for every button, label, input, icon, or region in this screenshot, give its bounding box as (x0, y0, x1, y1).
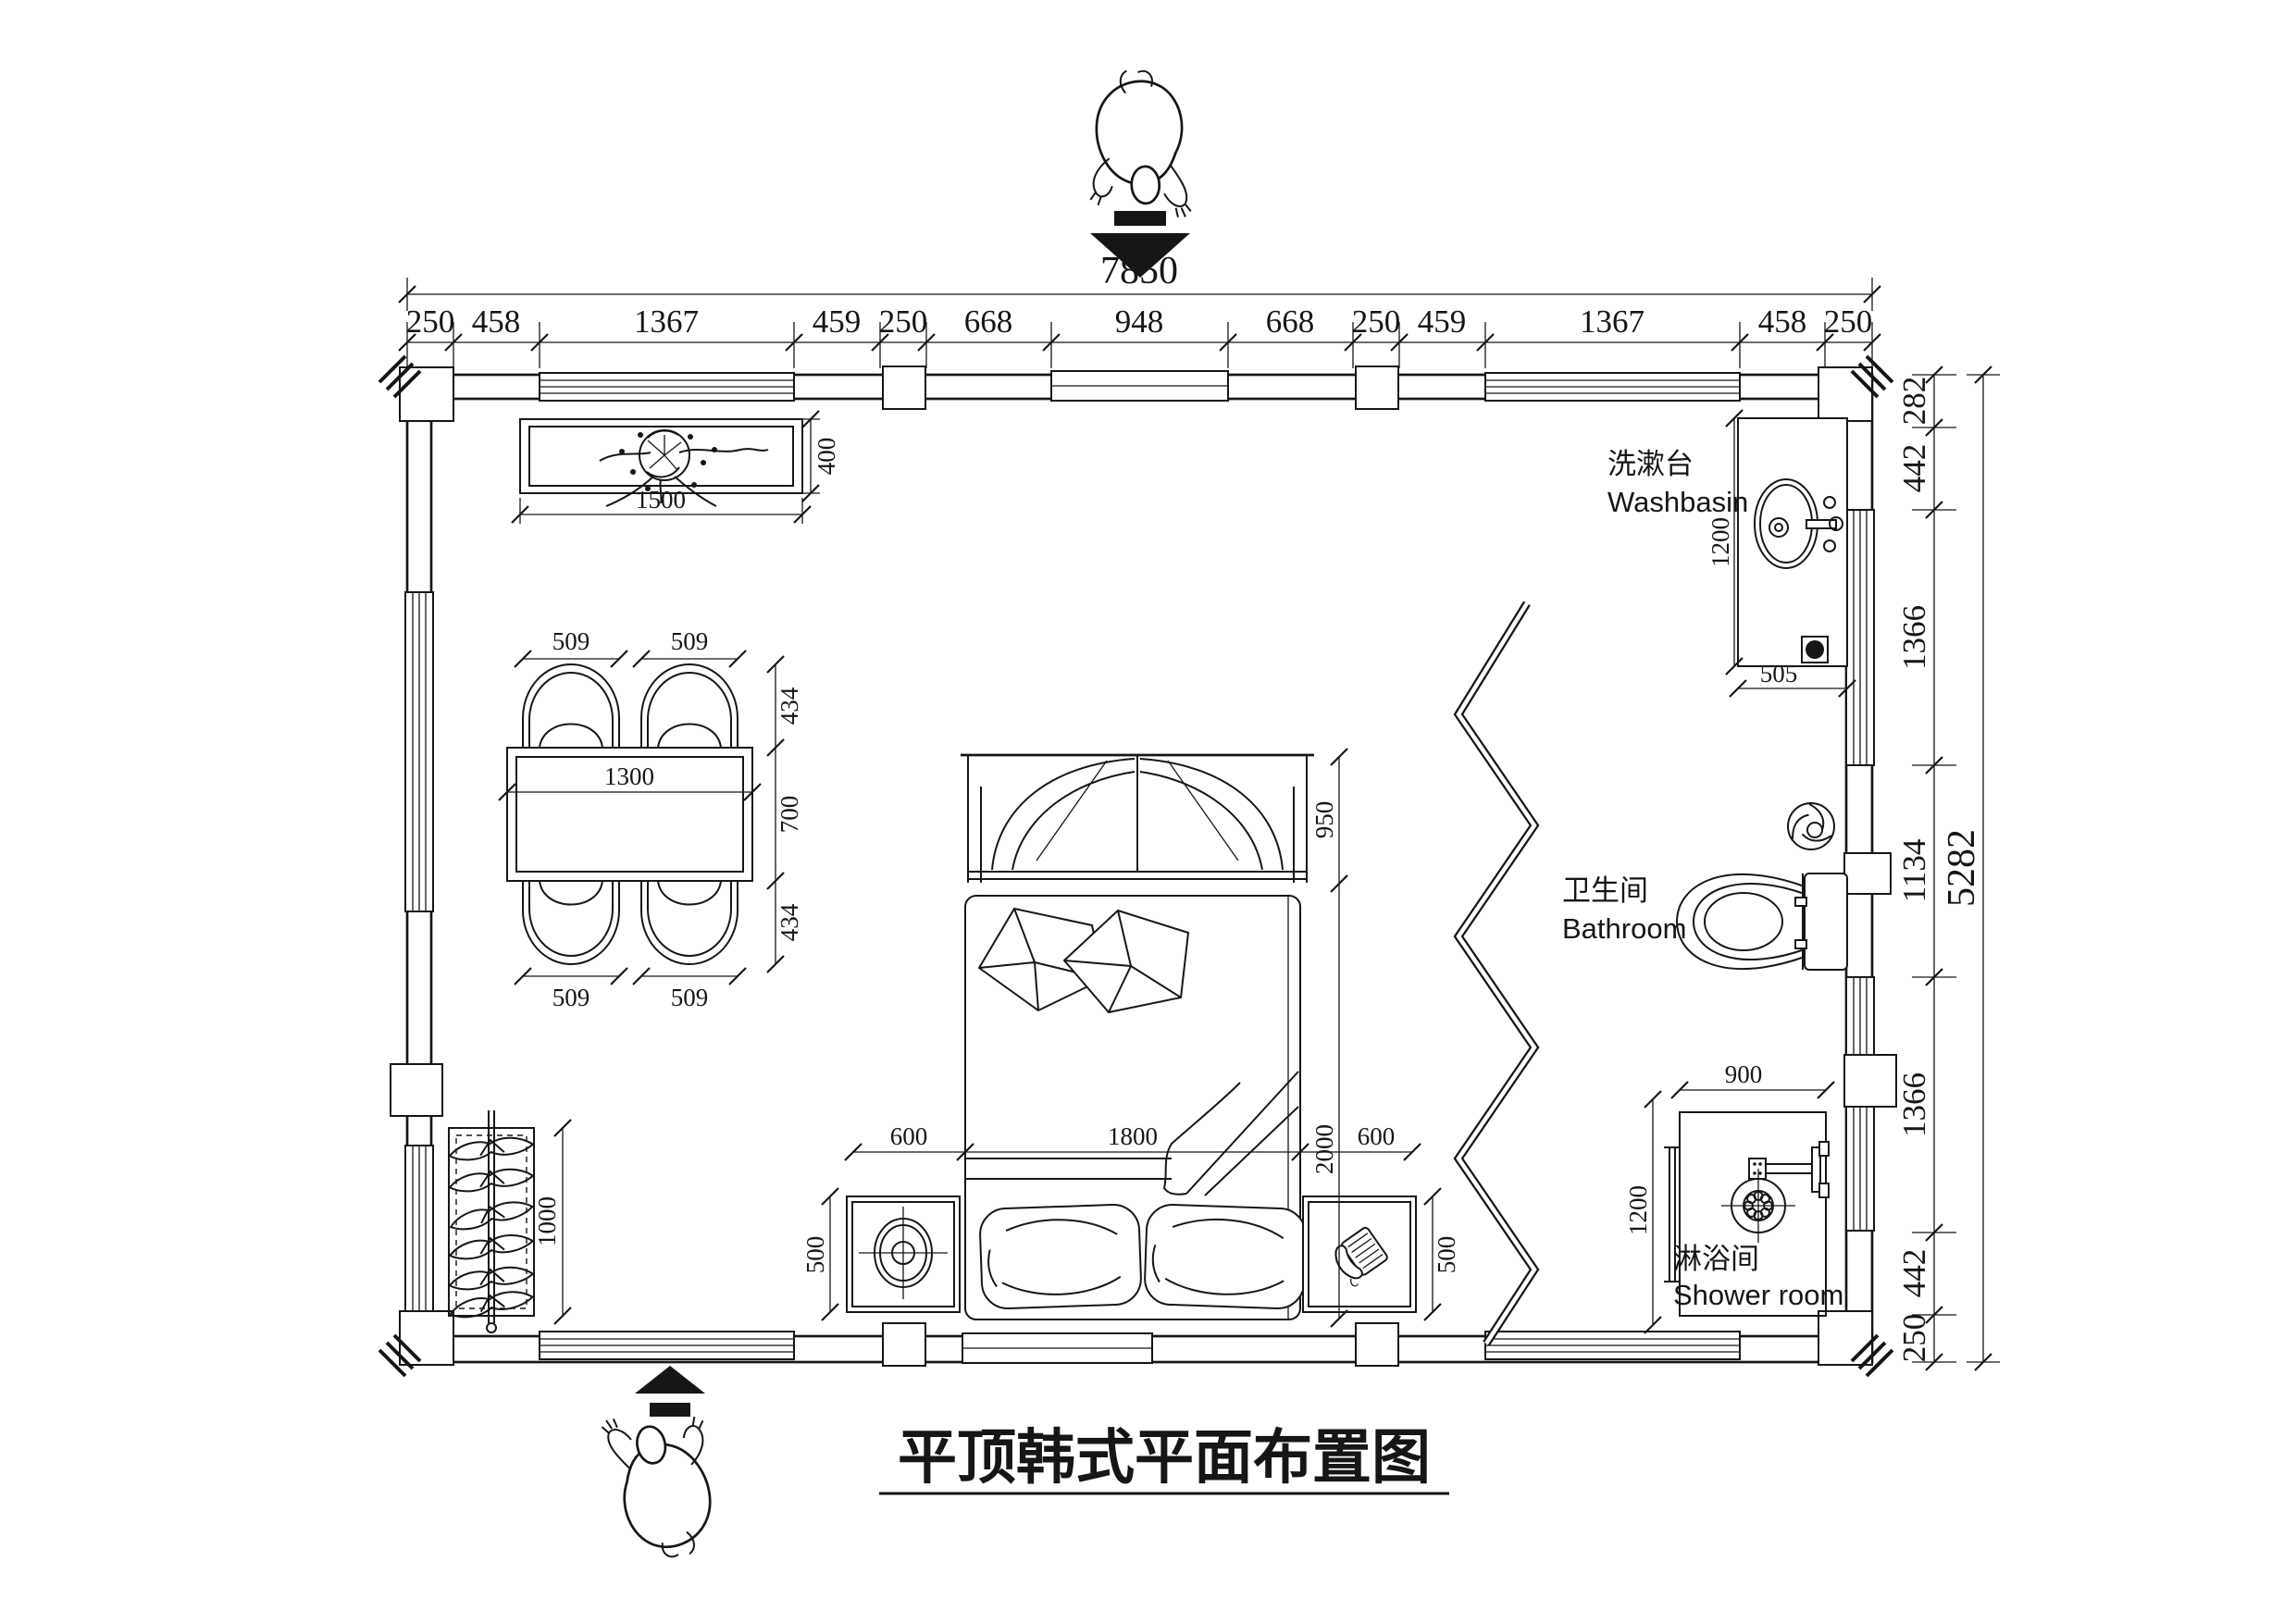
dim-label: 1366 (1896, 605, 1932, 670)
dim-label: 434 (776, 903, 803, 941)
dim-label: 1800 (1108, 1122, 1158, 1150)
dim-label: 282 (1896, 377, 1932, 426)
dim-label: 505 (1760, 660, 1798, 688)
shower-head-icon (1749, 1142, 1829, 1197)
nightstand-right (1303, 1196, 1416, 1312)
dim-label: 250 (1824, 304, 1873, 340)
dim-label: 442 (1896, 1249, 1932, 1298)
dim-right-overall: 5282 (1941, 366, 2000, 1370)
dim-label: 459 (1418, 304, 1467, 340)
dim-label: 250 (1896, 1314, 1932, 1363)
drawing-title-block: 平顶韩式平面布置图 (879, 1424, 1449, 1493)
dim-label: 459 (813, 304, 862, 340)
dim-top-chain: 250 458 1367 459 250 668 948 668 250 459… (399, 304, 1880, 368)
dim-label: 500 (801, 1236, 829, 1274)
wardrobe-rack (448, 1110, 534, 1332)
floor-drain-icon (1802, 637, 1828, 663)
person-bottom (601, 1401, 729, 1567)
dim-label: 600 (1358, 1122, 1396, 1150)
folding-screen (1458, 603, 1534, 1344)
window-left-lower (405, 1146, 433, 1314)
dining-chairs-bottom (523, 881, 738, 964)
window-left-upper (405, 592, 433, 911)
dim-label: 458 (472, 304, 521, 340)
dim-label: 2000 (1310, 1124, 1338, 1174)
dim-label: 434 (776, 687, 803, 725)
dim-console: 1500 400 (512, 411, 840, 524)
floor-plan-sheet: 7850 250 458 1367 459 250 668 948 668 25… (0, 0, 2296, 1623)
drain-swirl-icon (1786, 803, 1834, 849)
window-bottom-right (1485, 1332, 1740, 1359)
shower-drain-icon (1721, 1169, 1795, 1243)
dim-label: 250 (879, 304, 928, 340)
window-top-right (1485, 373, 1740, 401)
dim-label-total-width: 7850 (1100, 250, 1178, 292)
drawing-title: 平顶韩式平面布置图 (898, 1424, 1431, 1491)
dim-label-total-height: 5282 (1941, 829, 1983, 907)
entry-door-top (1051, 371, 1228, 401)
dim-label: 950 (1310, 801, 1338, 839)
floor-plan-drawing: 7850 250 458 1367 459 250 668 948 668 25… (0, 0, 2296, 1623)
dim-label: 250 (406, 304, 455, 340)
dim-label: 668 (964, 304, 1013, 340)
dim-label: 1300 (604, 762, 654, 790)
toilet (1677, 873, 1847, 970)
dim-label: 1367 (634, 304, 699, 340)
dim-label: 1200 (1706, 517, 1734, 567)
nightstand-left (847, 1196, 960, 1312)
washbasin-label-en: Washbasin (1607, 486, 1748, 518)
window-right-upper (1846, 510, 1874, 765)
entry-door-bottom (962, 1333, 1152, 1363)
dim-label: 700 (776, 796, 803, 834)
dim-wardrobe: 1000 (533, 1120, 571, 1324)
person-top (1086, 68, 1191, 220)
dim-label: 900 (1725, 1060, 1763, 1088)
dim-label: 509 (671, 984, 709, 1011)
window-bottom-left (540, 1332, 794, 1359)
dim-label: 250 (1352, 304, 1401, 340)
window-top-left (540, 373, 794, 401)
bathroom-label-en: Bathroom (1562, 912, 1686, 945)
dining-chairs-top (523, 664, 738, 748)
shower-label-zh: 淋浴间 (1673, 1243, 1759, 1275)
dim-top-overall: 7850 (399, 250, 1880, 311)
dim-label: 509 (552, 984, 590, 1011)
dim-label: 1200 (1624, 1185, 1652, 1235)
dim-label: 668 (1266, 304, 1315, 340)
dim-label: 600 (890, 1122, 928, 1150)
dim-label: 458 (1758, 304, 1807, 340)
dim-label: 500 (1433, 1236, 1460, 1274)
dim-label: 1500 (636, 486, 686, 514)
dim-label: 1000 (533, 1196, 561, 1246)
bed (965, 896, 1307, 1319)
dim-label: 1366 (1896, 1072, 1932, 1137)
dim-label: 442 (1896, 444, 1932, 493)
bathroom-label-zh: 卫生间 (1562, 874, 1648, 907)
dim-label: 400 (813, 438, 840, 476)
dim-label: 1134 (1896, 839, 1932, 903)
bay-window-curtain (961, 755, 1314, 883)
dim-label: 948 (1115, 304, 1164, 340)
entry-arrow-up-icon (635, 1366, 705, 1417)
dim-label: 1367 (1580, 304, 1644, 340)
washbasin-label-zh: 洗漱台 (1607, 448, 1694, 480)
shower-label-en: Shower room (1673, 1279, 1843, 1311)
dim-label: 509 (671, 627, 709, 655)
washbasin-vanity (1738, 418, 1847, 666)
dim-label: 509 (552, 627, 590, 655)
